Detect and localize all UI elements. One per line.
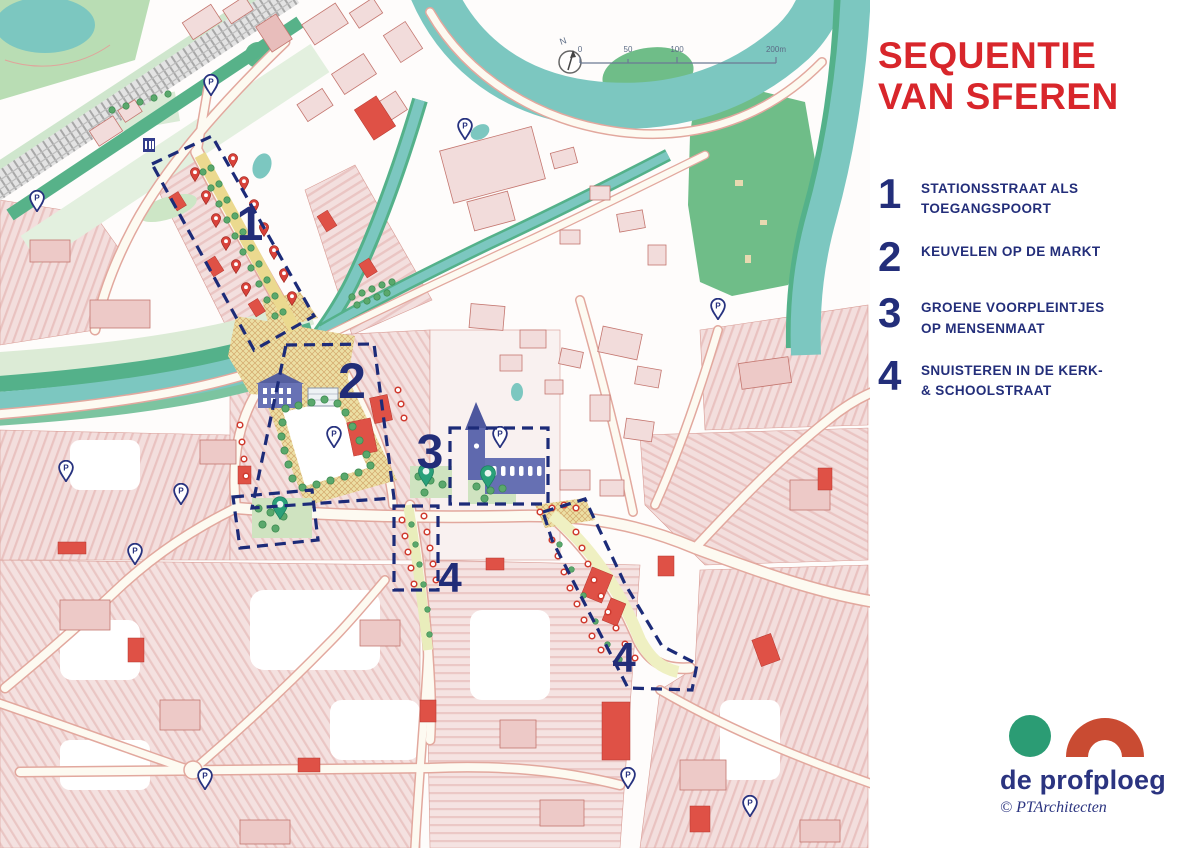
legend-number-4: 4 (878, 356, 906, 396)
company-logo: de profploeg © PTArchitecten (1000, 700, 1178, 817)
scale-0: 0 (578, 45, 583, 54)
legend-label-4: SNUISTEREN IN DE KERK- & SCHOOLSTRAAT (921, 360, 1103, 402)
logo-name: de profploeg (1000, 765, 1178, 796)
zone-4b-label: 4 (612, 634, 636, 681)
legend-item-1: 1 STATIONSSTRAAT ALS TOEGANGSPOORT (878, 178, 1190, 220)
legend-label-3-line1: GROENE VOORPLEINTJES (921, 298, 1105, 318)
logo-copyright: © PTArchitecten (1000, 799, 1178, 817)
legend-label-2-line1: KEUVELEN OP DE MARKT (921, 242, 1101, 262)
title-line-2: VAN SFEREN (878, 77, 1119, 118)
legend-label-1-line2: TOEGANGSPOORT (921, 199, 1078, 219)
logo-mark (1008, 700, 1148, 758)
zone-4a-label: 4 (438, 554, 462, 601)
legend-item-2: 2 KEUVELEN OP DE MARKT (878, 241, 1190, 277)
legend-label-2: KEUVELEN OP DE MARKT (921, 241, 1101, 262)
zone-2-label: 2 (338, 353, 366, 409)
scale-200m: 200m (766, 45, 786, 54)
logo-red-arch-icon (1066, 718, 1144, 757)
legend-label-4-line2: & SCHOOLSTRAAT (921, 381, 1103, 401)
sidebar: SEQUENTIE VAN SFEREN 1 STATIONSSTRAAT AL… (870, 0, 1200, 848)
legend-label-1: STATIONSSTRAAT ALS TOEGANGSPOORT (921, 178, 1078, 220)
legend-number-2: 2 (878, 237, 906, 277)
legend-label-4-line1: SNUISTEREN IN DE KERK- (921, 361, 1103, 381)
city-map-svg: P (0, 0, 870, 848)
legend: 1 STATIONSSTRAAT ALS TOEGANGSPOORT 2 KEU… (878, 178, 1190, 422)
scale-100: 100 (670, 45, 684, 54)
zone-1-label: 1 (237, 198, 264, 251)
legend-label-1-line1: STATIONSSTRAAT ALS (921, 179, 1078, 199)
city-map: P (0, 0, 870, 848)
legend-item-3: 3 GROENE VOORPLEINTJES OP MENSENMAAT (878, 297, 1190, 339)
title-line-1: SEQUENTIE (878, 36, 1119, 77)
legend-number-1: 1 (878, 174, 906, 214)
page-title: SEQUENTIE VAN SFEREN (878, 36, 1119, 117)
zone-3-label: 3 (417, 426, 444, 479)
legend-item-4: 4 SNUISTEREN IN DE KERK- & SCHOOLSTRAAT (878, 360, 1190, 402)
legend-label-3: GROENE VOORPLEINTJES OP MENSENMAAT (921, 297, 1105, 339)
scale-50: 50 (624, 45, 633, 54)
poster-page: P (0, 0, 1200, 848)
legend-label-3-line2: OP MENSENMAAT (921, 319, 1105, 339)
logo-green-circle-icon (1009, 715, 1051, 757)
legend-number-3: 3 (878, 293, 906, 333)
station-icon (143, 138, 155, 152)
